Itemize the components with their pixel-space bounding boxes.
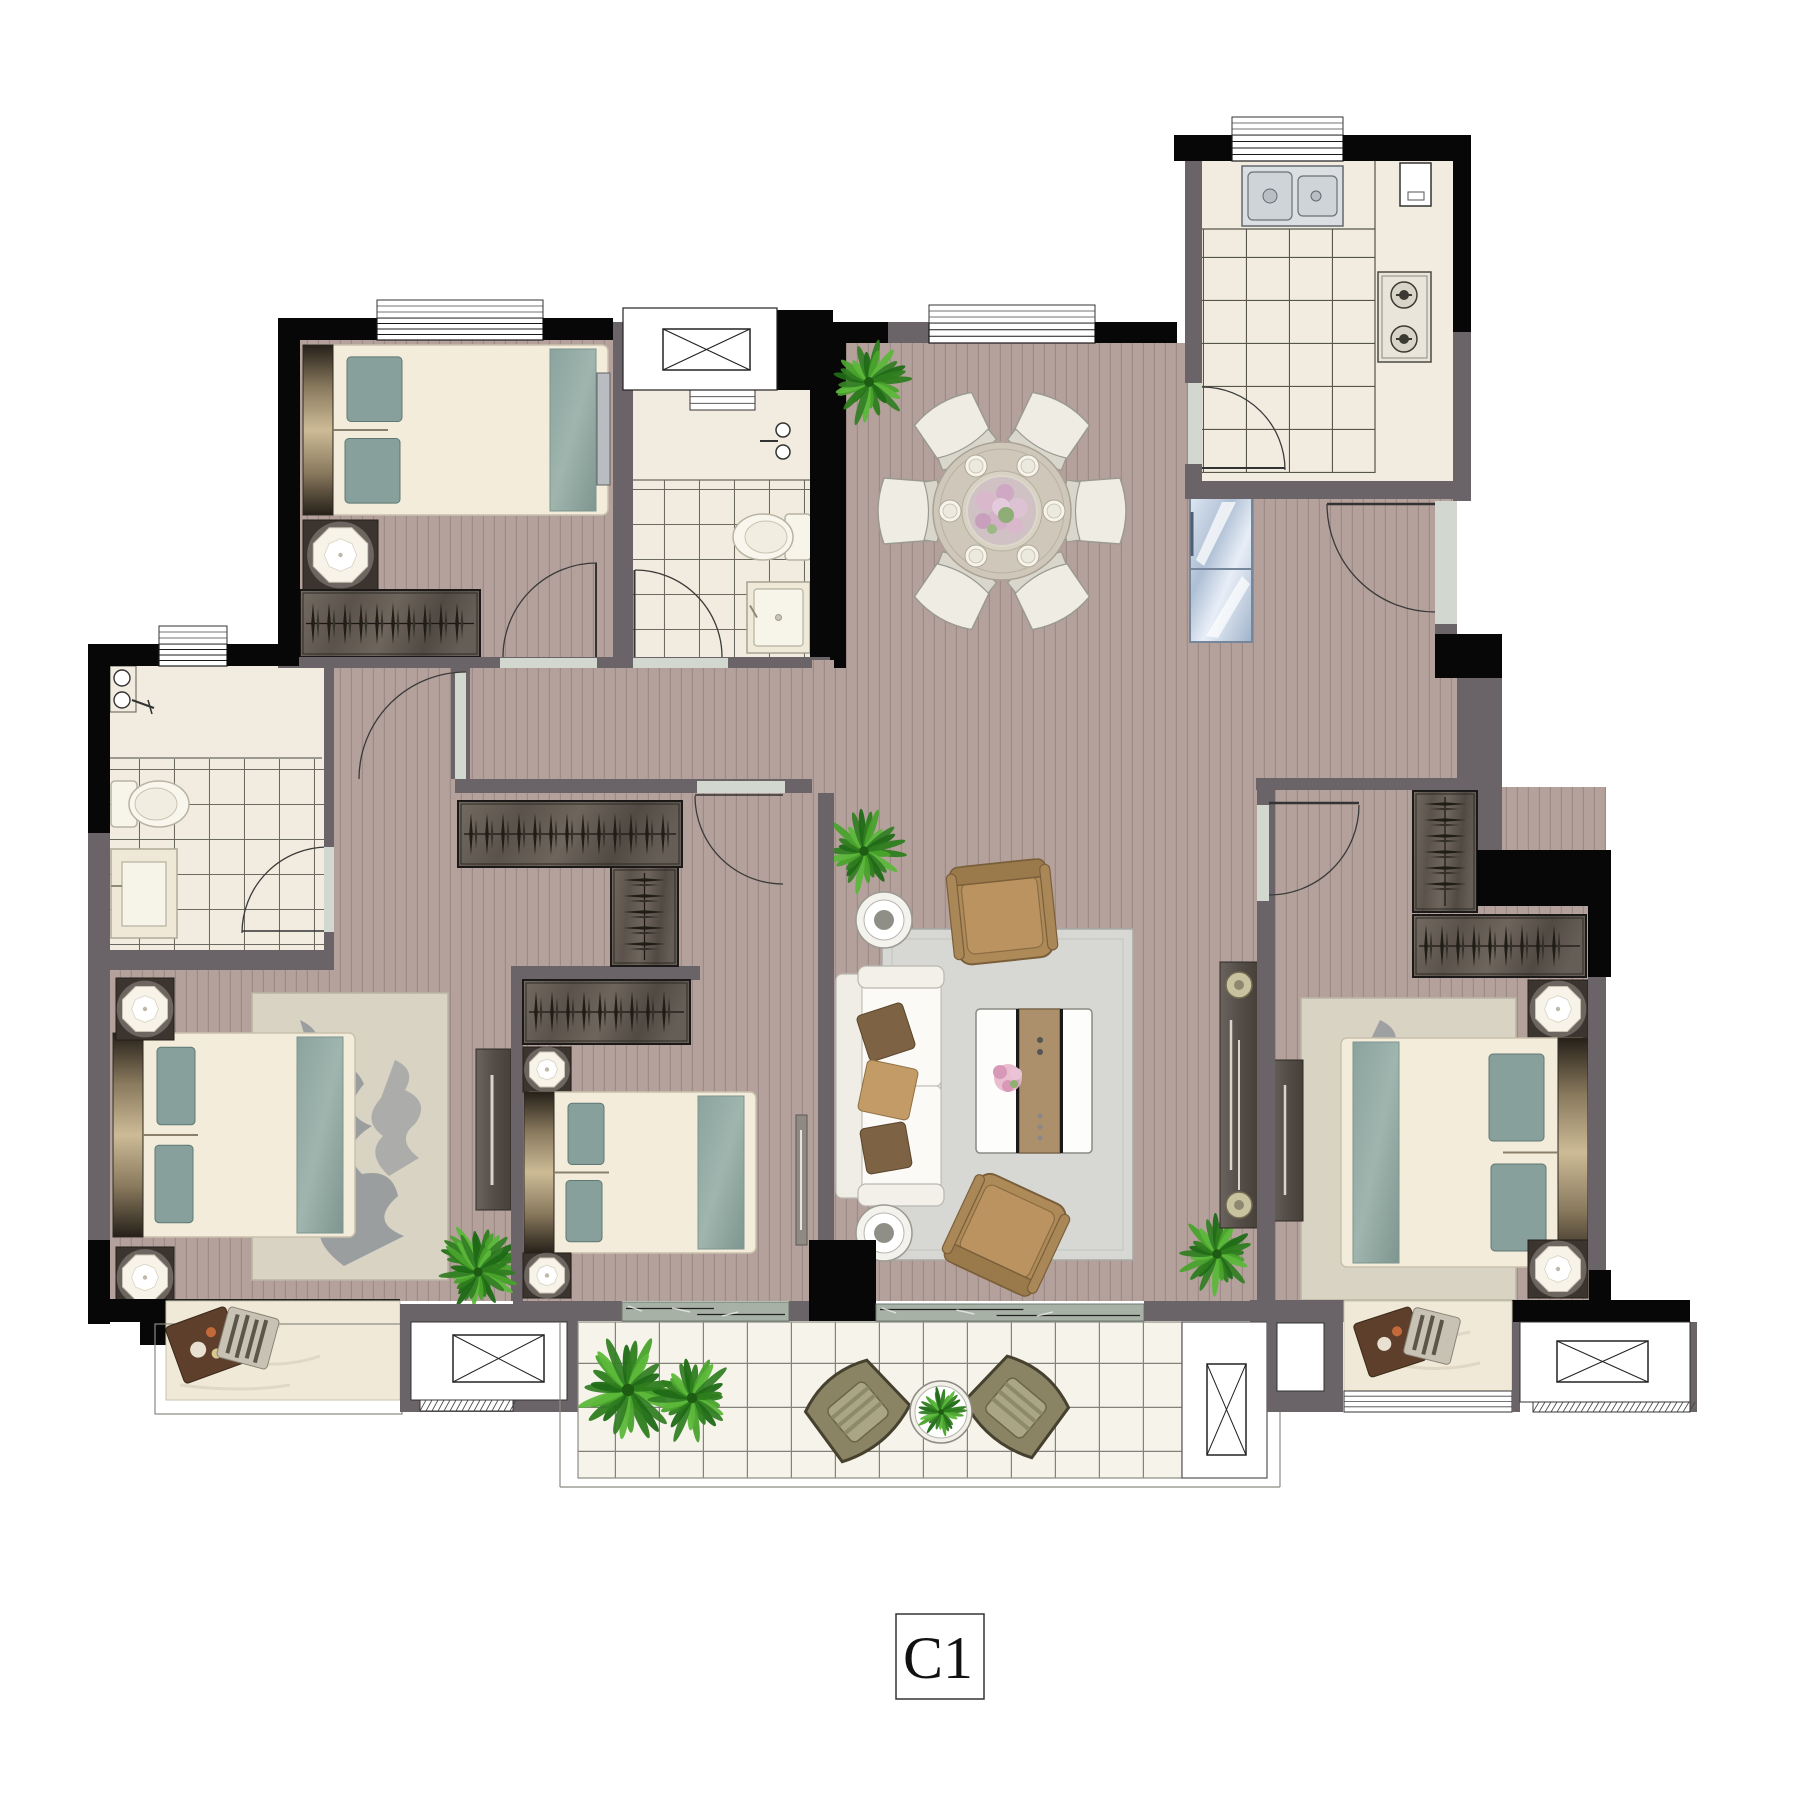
svg-text:C1: C1	[903, 1625, 973, 1691]
